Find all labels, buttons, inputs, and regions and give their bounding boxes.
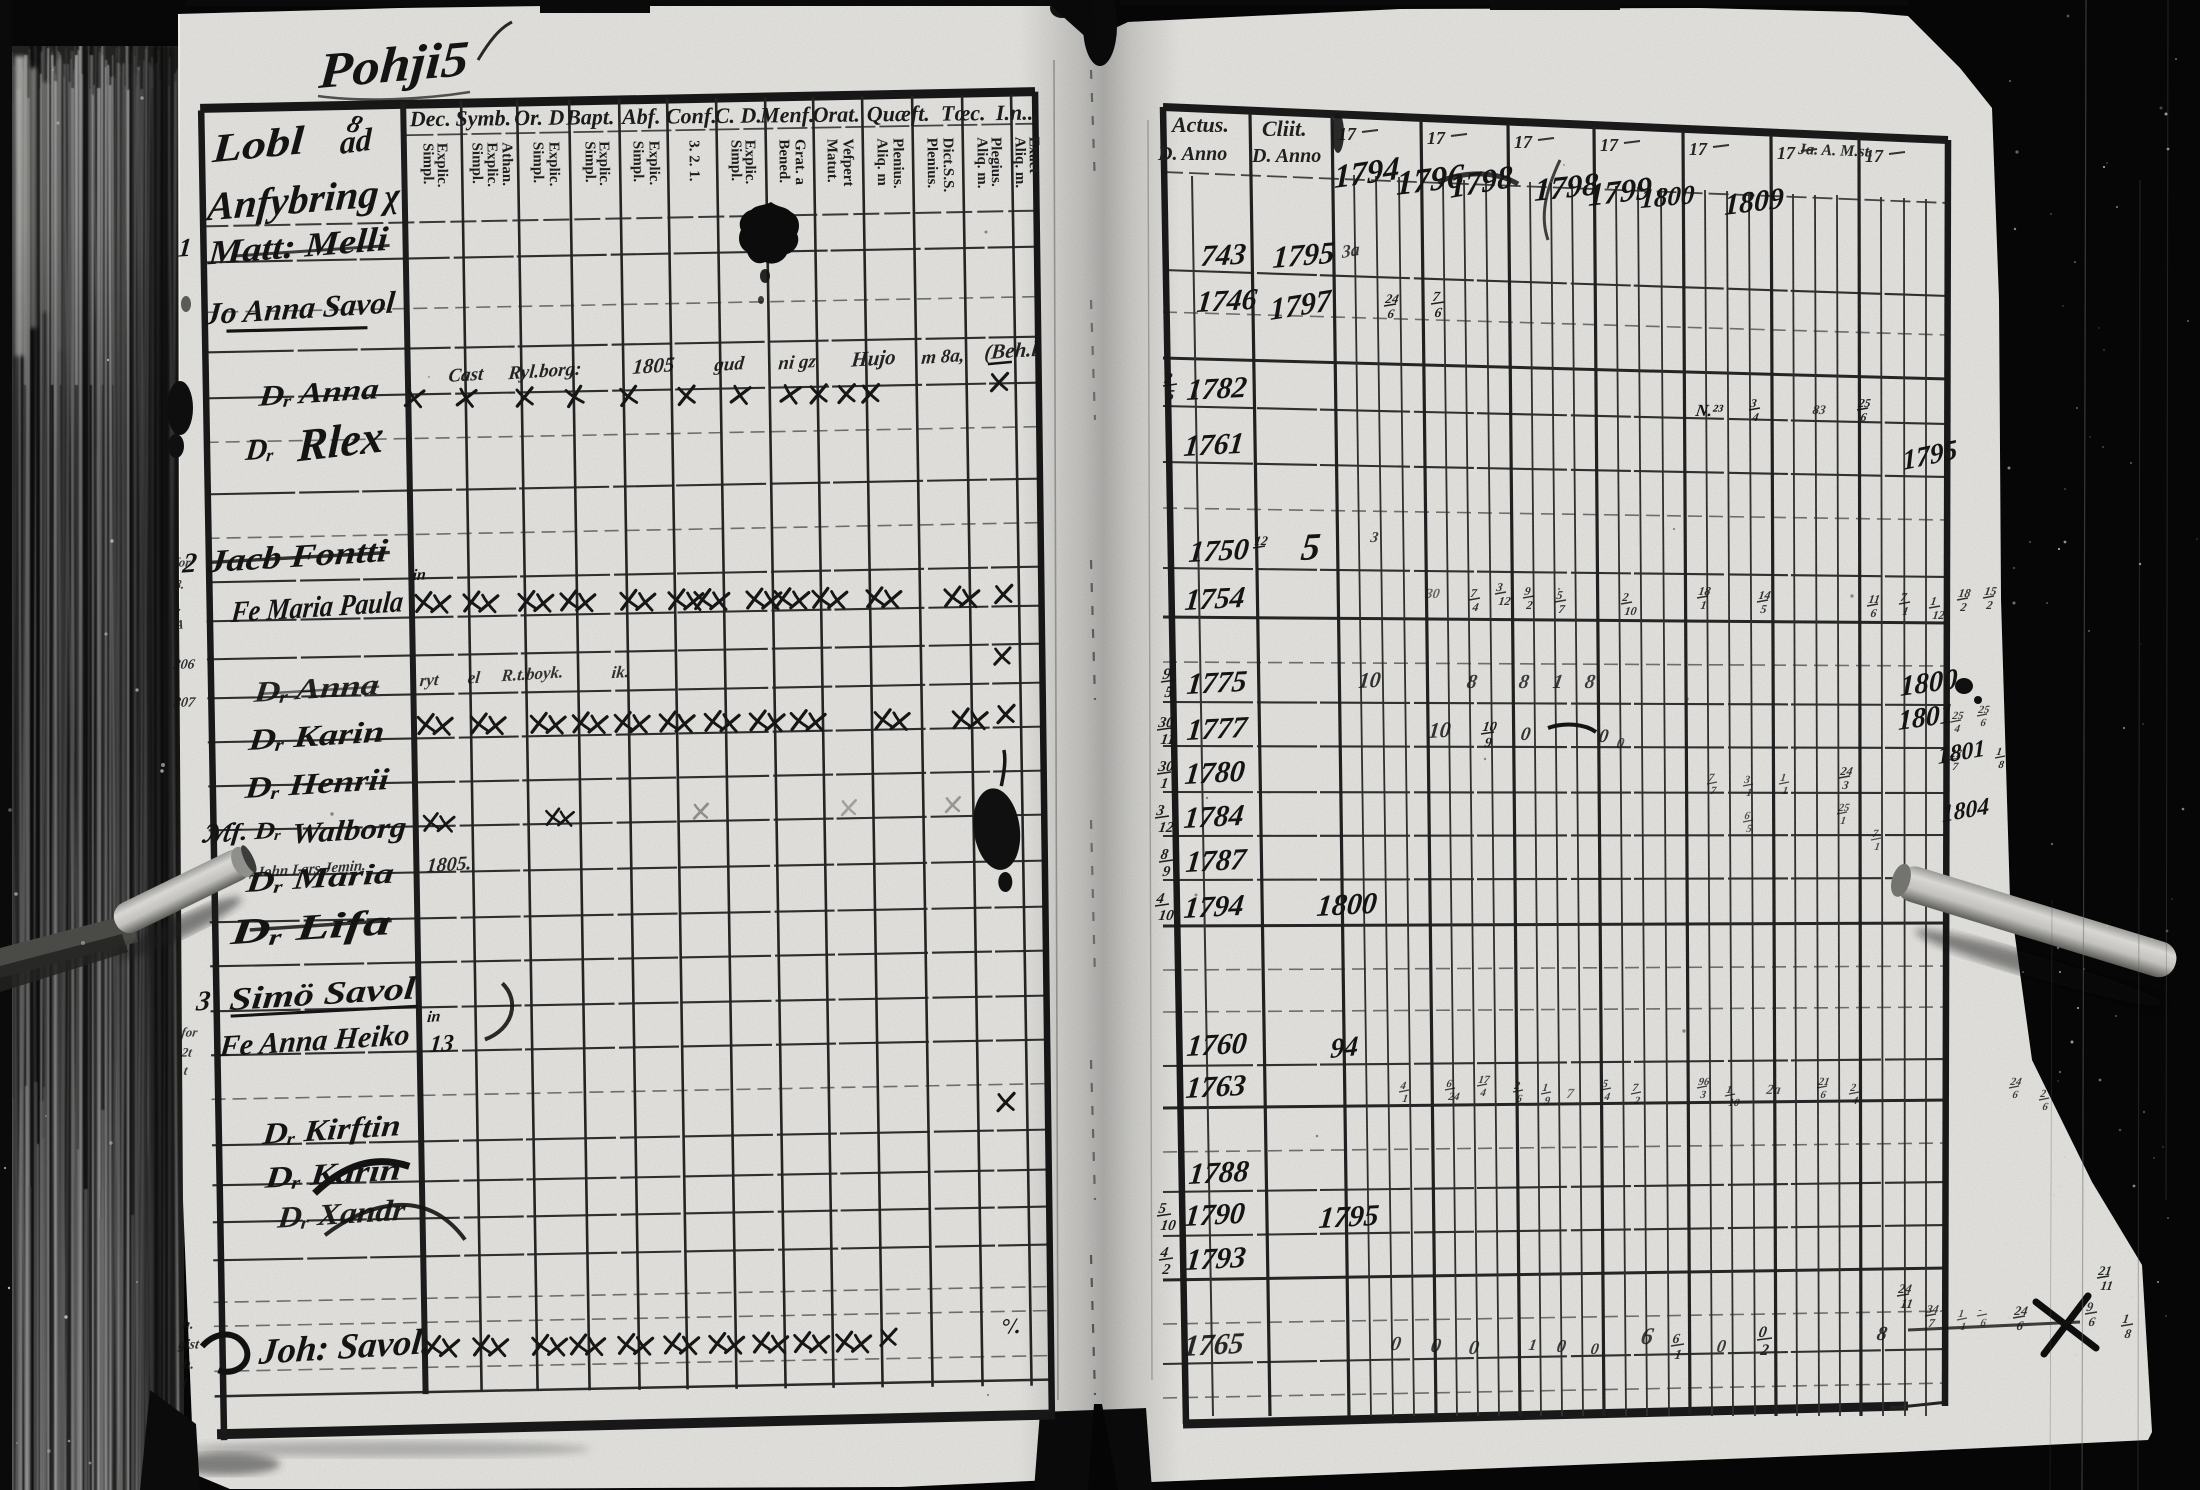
svg-text:Abf.: Abf.: [620, 104, 661, 129]
svg-text:24: 24: [1384, 291, 1401, 306]
svg-text:10: 10: [1357, 667, 1382, 693]
svg-text:1795: 1795: [1272, 234, 1336, 275]
svg-text:24: 24: [1839, 764, 1854, 778]
svg-text:Simpl.: Simpl.: [630, 141, 646, 183]
svg-text:1763: 1763: [1184, 1068, 1247, 1105]
svg-text:Explic.: Explic.: [546, 142, 562, 187]
svg-text:24: 24: [2013, 1303, 2030, 1318]
svg-text:Bapt.: Bapt.: [565, 104, 615, 130]
svg-text:12: 12: [1932, 608, 1946, 622]
svg-text:1777: 1777: [1185, 710, 1250, 747]
svg-text:Or. D: Or. D: [514, 105, 564, 131]
svg-text:D. Anno: D. Anno: [1251, 145, 1321, 167]
svg-text:11: 11: [1159, 732, 1176, 748]
svg-text:R.t.boyk.: R.t.boyk.: [500, 662, 564, 685]
svg-text:34: 34: [1925, 1302, 1940, 1316]
svg-text:Simpl.: Simpl.: [469, 142, 485, 184]
svg-text:(Beh.l: (Beh.l: [983, 337, 1038, 364]
svg-text:1746: 1746: [1195, 282, 1259, 319]
svg-text:Tœc.: Tœc.: [941, 100, 986, 125]
svg-text:10: 10: [1427, 717, 1452, 743]
svg-text:11: 11: [1868, 592, 1882, 606]
svg-text:Grat. a: Grat. a: [792, 139, 808, 185]
svg-text:Hujo: Hujo: [849, 345, 897, 372]
svg-text:Rlex: Rlex: [295, 411, 384, 472]
svg-text:17: 17: [1600, 135, 1619, 155]
svg-text:Dict.S.S.: Dict.S.S.: [940, 138, 957, 193]
svg-text:gist: gist: [177, 1337, 202, 1353]
svg-text:13: 13: [428, 1030, 454, 1059]
svg-text:1795: 1795: [1317, 1198, 1380, 1235]
svg-text:1750: 1750: [1187, 532, 1250, 569]
svg-text:1787: 1787: [1184, 842, 1249, 879]
svg-text:12: 12: [1498, 594, 1512, 608]
svg-text:1780: 1780: [1183, 754, 1246, 791]
svg-text:11: 11: [1900, 1296, 1915, 1311]
svg-text:I.n...: I.n...: [995, 100, 1039, 125]
svg-text:18: 18: [1958, 586, 1972, 600]
svg-text:Quæft.: Quæft.: [867, 101, 930, 127]
svg-text:Plenius.: Plenius.: [924, 138, 941, 189]
svg-text:Aliq. m.: Aliq. m.: [973, 137, 990, 189]
svg-text:14: 14: [1758, 588, 1772, 602]
svg-text:Dec.: Dec.: [409, 106, 451, 131]
svg-text:1788: 1788: [1187, 1154, 1250, 1191]
svg-text:1805.: 1805.: [426, 852, 473, 877]
svg-text:1805: 1805: [631, 352, 676, 379]
svg-text:1790: 1790: [1183, 1196, 1246, 1233]
svg-text:1782: 1782: [1185, 370, 1248, 407]
svg-text:for: for: [180, 1025, 199, 1040]
svg-text:1754: 1754: [1183, 580, 1246, 617]
svg-text:in: in: [426, 1008, 441, 1026]
svg-text:10: 10: [1624, 604, 1638, 618]
svg-text:24: 24: [1897, 1281, 1914, 1296]
svg-text:18: 18: [1698, 584, 1712, 598]
svg-text:Conf.: Conf.: [666, 103, 717, 129]
svg-text:3. 2. 1.: 3. 2. 1.: [686, 140, 702, 182]
svg-text:Symb.: Symb.: [455, 105, 511, 131]
svg-text:17: 17: [1514, 132, 1533, 152]
svg-text:C. D.: C. D.: [715, 103, 762, 128]
svg-text:D. Anno: D. Anno: [1157, 143, 1227, 165]
svg-text:m 8a,: m 8a,: [920, 345, 965, 369]
svg-text:Simpl.: Simpl.: [582, 141, 598, 183]
svg-text:1760: 1760: [1185, 1026, 1248, 1063]
svg-text:Simpl.: Simpl.: [530, 142, 546, 184]
svg-text:Explic.: Explic.: [484, 142, 500, 187]
svg-text:Menf.: Menf.: [759, 102, 815, 128]
svg-text:307: 307: [172, 695, 197, 711]
svg-text:94: 94: [1330, 1031, 1359, 1065]
svg-text:3a: 3a: [1341, 239, 1360, 262]
svg-text:25: 25: [1857, 396, 1872, 410]
svg-text:Actus.: Actus.: [1170, 112, 1229, 137]
svg-text:743: 743: [1199, 237, 1247, 273]
svg-text:Aliq. m: Aliq. m: [874, 138, 891, 186]
svg-text:1784: 1784: [1182, 798, 1245, 835]
svg-text:Matut.: Matut.: [824, 139, 840, 183]
svg-text:17: 17: [1777, 143, 1796, 163]
svg-text:h.: h.: [181, 1317, 195, 1333]
svg-text:11: 11: [2100, 1278, 2115, 1293]
svg-text:12: 12: [1157, 820, 1175, 836]
svg-text:Cast: Cast: [448, 364, 485, 387]
svg-text:1800: 1800: [1315, 886, 1378, 923]
svg-text:Ja. A. M.st.: Ja. A. M.st.: [1797, 141, 1874, 161]
svg-text:21: 21: [2097, 1263, 2113, 1278]
svg-text:1775: 1775: [1185, 664, 1248, 701]
svg-text:Vefpert: Vefpert: [840, 139, 856, 187]
svg-text:Lobl: Lobl: [210, 117, 306, 171]
svg-text:15: 15: [1984, 584, 1998, 598]
svg-text:10: 10: [1157, 908, 1175, 924]
svg-text:Plenius.: Plenius.: [890, 138, 907, 189]
svg-text:for: for: [174, 555, 193, 570]
svg-text:ik.: ik.: [611, 662, 630, 682]
svg-text:3: 3: [194, 986, 212, 1018]
svg-text:1761: 1761: [1182, 426, 1245, 463]
svg-text:17: 17: [1689, 139, 1708, 159]
svg-text:Explic.: Explic.: [646, 141, 662, 186]
svg-text:Athan.: Athan.: [499, 142, 515, 186]
svg-text:Orat.: Orat.: [813, 102, 860, 127]
svg-text:N.²³: N.²³: [1693, 401, 1725, 420]
svg-text:Aliq. m.: Aliq. m.: [1011, 137, 1028, 189]
svg-text:10: 10: [1159, 1218, 1177, 1234]
svg-text:17: 17: [1427, 128, 1446, 148]
svg-text:h.: h.: [182, 1357, 196, 1373]
svg-text:1765: 1765: [1182, 1326, 1245, 1363]
svg-text:1800: 1800: [1640, 179, 1696, 214]
svg-text:el: el: [467, 668, 481, 688]
svg-text:2a: 2a: [1764, 1082, 1782, 1098]
svg-text:Bened.: Bened.: [776, 139, 792, 183]
svg-text:Cliit.: Cliit.: [1262, 116, 1307, 141]
svg-text:gud: gud: [712, 353, 745, 376]
svg-text:ℳf. Dᵣ: ℳf. Dᵣ: [200, 816, 283, 848]
svg-text:ryt: ryt: [419, 670, 441, 690]
svg-text:Simpl.: Simpl.: [420, 143, 436, 185]
svg-text:in: in: [412, 566, 427, 584]
svg-text:Dᵣ: Dᵣ: [243, 431, 276, 467]
svg-text:30: 30: [1423, 586, 1441, 602]
svg-text:°/.: °/.: [1000, 1313, 1023, 1339]
svg-text:24: 24: [1447, 1091, 1461, 1103]
svg-text:1793: 1793: [1184, 1240, 1247, 1277]
svg-text:ni gz: ni gz: [777, 351, 817, 374]
svg-text:1794: 1794: [1182, 888, 1245, 925]
svg-text:306: 306: [171, 657, 196, 673]
svg-text:Simpl.: Simpl.: [728, 140, 744, 182]
